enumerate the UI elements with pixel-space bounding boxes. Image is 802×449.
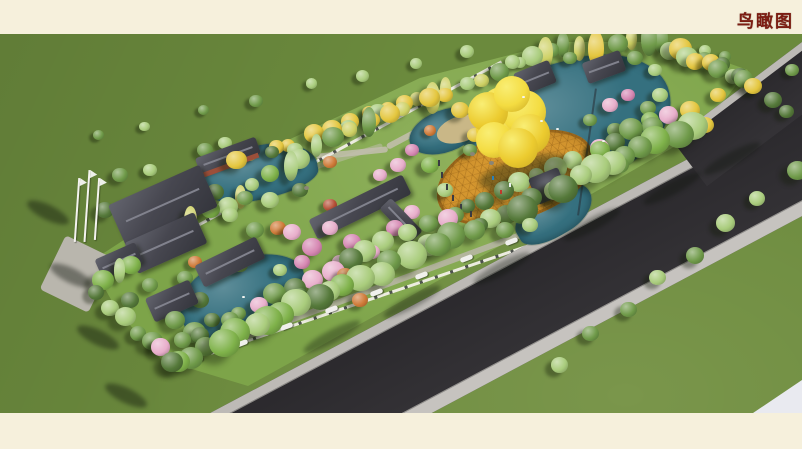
tree-icon <box>306 284 334 310</box>
tree-icon <box>380 104 401 123</box>
person <box>492 176 494 180</box>
tree-icon <box>174 332 191 347</box>
tree-icon <box>88 285 104 300</box>
tree-icon <box>209 329 240 358</box>
tree-icon <box>322 127 344 147</box>
tree-icon <box>226 151 246 170</box>
tree-icon <box>245 178 259 191</box>
tree-icon <box>649 270 666 285</box>
water-bird <box>540 120 543 122</box>
water-bird <box>602 140 605 142</box>
tree-icon <box>419 215 437 232</box>
tree-icon <box>249 95 263 108</box>
roof-ridge <box>154 292 190 309</box>
tree-icon <box>424 125 436 136</box>
golden-canopy-lobe <box>498 128 538 168</box>
rock <box>304 186 309 190</box>
aerial-render <box>0 0 802 449</box>
slide-title: 鸟瞰图 <box>737 7 794 32</box>
slide-margin-top <box>0 0 802 34</box>
tree-icon <box>311 134 322 157</box>
water-bird <box>522 96 525 98</box>
plaza-fence-post <box>446 184 448 190</box>
golden-canopy-lobe <box>494 76 530 112</box>
tree-icon <box>425 233 451 257</box>
tree-icon <box>410 58 422 69</box>
person <box>509 183 511 187</box>
tree-icon <box>548 175 578 203</box>
tree-icon <box>787 161 802 181</box>
roof-ridge <box>138 229 194 256</box>
tree-icon <box>398 224 416 241</box>
plaza-fence-post <box>438 160 440 166</box>
rock <box>470 152 475 156</box>
person <box>500 190 502 194</box>
tree-icon <box>716 214 735 232</box>
presentation-slide: 鸟瞰图 <box>0 0 802 449</box>
tree-icon <box>93 130 104 140</box>
tree-icon <box>749 191 765 206</box>
tree-icon <box>582 326 599 341</box>
tree-icon <box>686 247 704 264</box>
tree-icon <box>198 105 209 115</box>
water-bird <box>242 296 245 298</box>
tree-icon <box>306 78 318 89</box>
tree-icon <box>460 45 474 58</box>
tree-icon <box>779 105 794 119</box>
tree-icon <box>161 352 183 372</box>
water-bird <box>556 128 559 130</box>
plaza-fence-post <box>441 172 443 178</box>
tree-icon <box>114 258 125 282</box>
tree-icon <box>620 302 637 318</box>
plaza-fence-post <box>470 211 472 217</box>
slide-margin-bottom <box>0 413 802 449</box>
rock <box>489 161 494 165</box>
tree-icon <box>464 220 485 240</box>
roof-ridge <box>589 61 620 74</box>
plaza-fence-post <box>452 195 454 201</box>
